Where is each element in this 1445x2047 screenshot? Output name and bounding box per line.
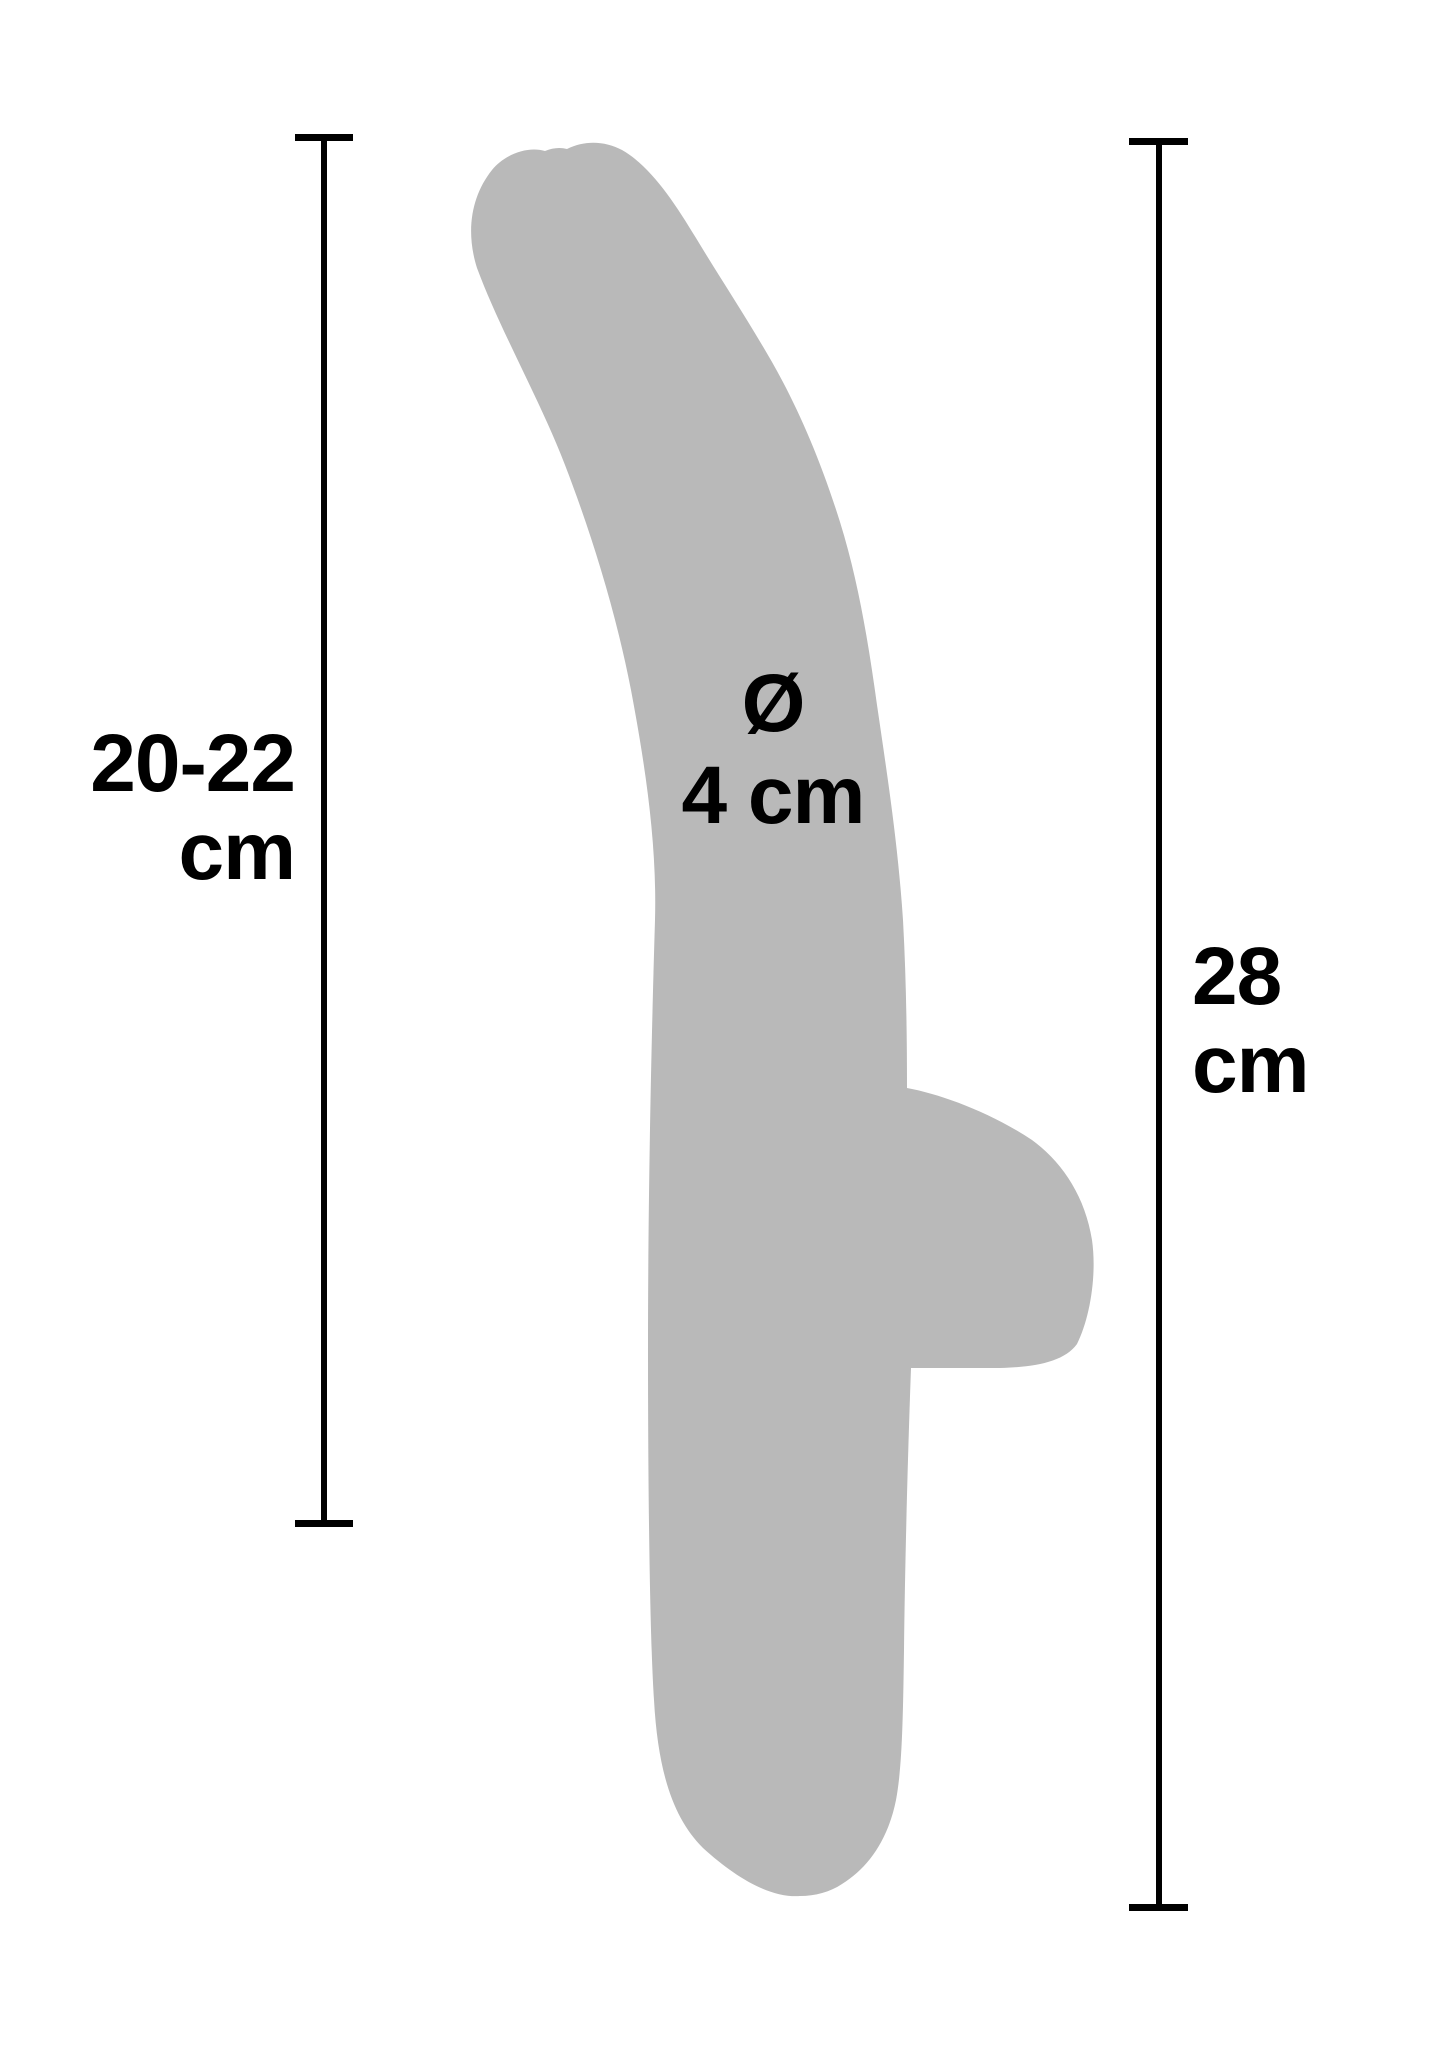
dimension-diagram: 20-22 cm 28 cm Ø 4 cm [0, 0, 1445, 2047]
insertable-length-unit: cm [90, 808, 295, 896]
right-dimension-bottom-tick [1129, 1904, 1188, 1911]
right-dimension-vertical-bar [1156, 140, 1162, 1911]
diameter-symbol: Ø [682, 658, 865, 750]
product-silhouette-shape [471, 143, 1094, 1896]
insertable-length-label: 20-22 cm [90, 720, 295, 896]
diameter-value: 4 cm [682, 750, 865, 842]
total-length-label: 28 cm [1192, 933, 1309, 1109]
diameter-label: Ø 4 cm [682, 658, 865, 842]
left-dimension-bottom-tick [295, 1520, 353, 1527]
left-dimension-vertical-bar [321, 137, 327, 1527]
total-length-value: 28 [1192, 933, 1309, 1021]
insertable-length-value: 20-22 [90, 720, 295, 808]
total-length-unit: cm [1192, 1021, 1309, 1109]
